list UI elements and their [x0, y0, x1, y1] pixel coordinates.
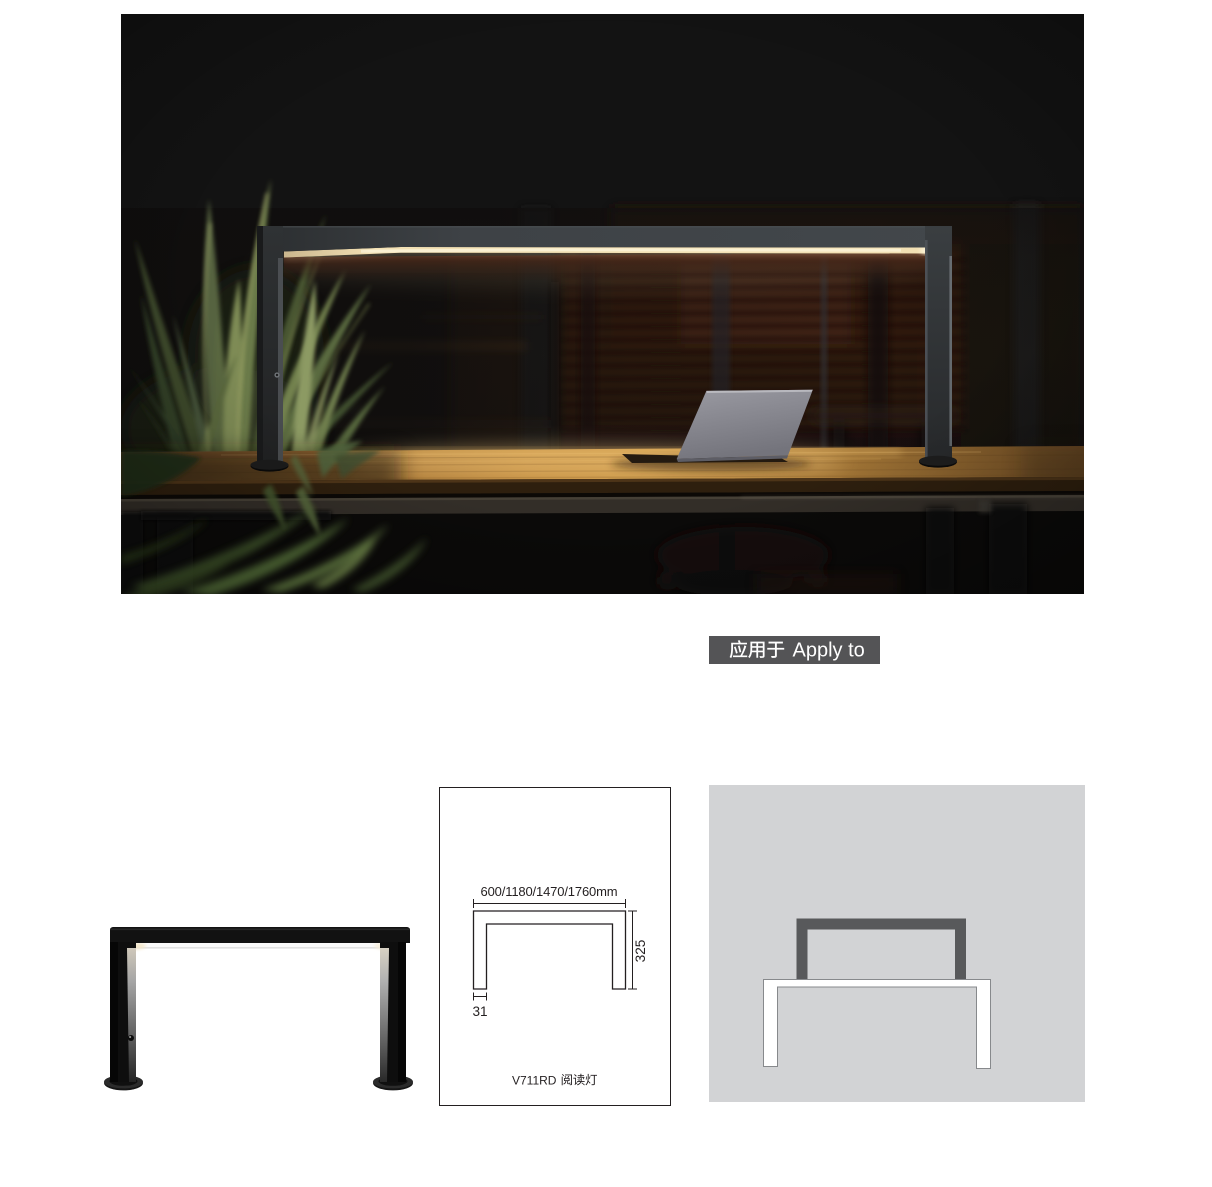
svg-text:V711RD: V711RD [512, 1073, 557, 1087]
svg-text:31: 31 [472, 1004, 487, 1019]
svg-text:Apply to: Apply to [793, 639, 865, 661]
svg-text:600/1180/1470/1760mm: 600/1180/1470/1760mm [481, 884, 618, 899]
svg-text:325: 325 [633, 940, 648, 963]
